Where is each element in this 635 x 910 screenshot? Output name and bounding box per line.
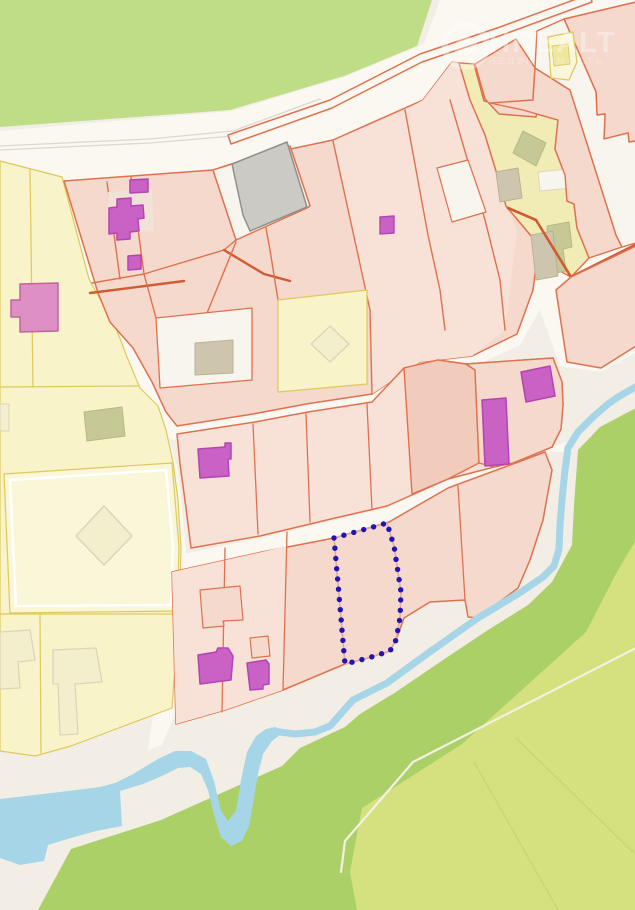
svg-text:HREALT: HREALT (489, 27, 616, 59)
svg-text:НЕДВИЖИМОСТЬ: НЕДВИЖИМОСТЬ (489, 56, 605, 66)
